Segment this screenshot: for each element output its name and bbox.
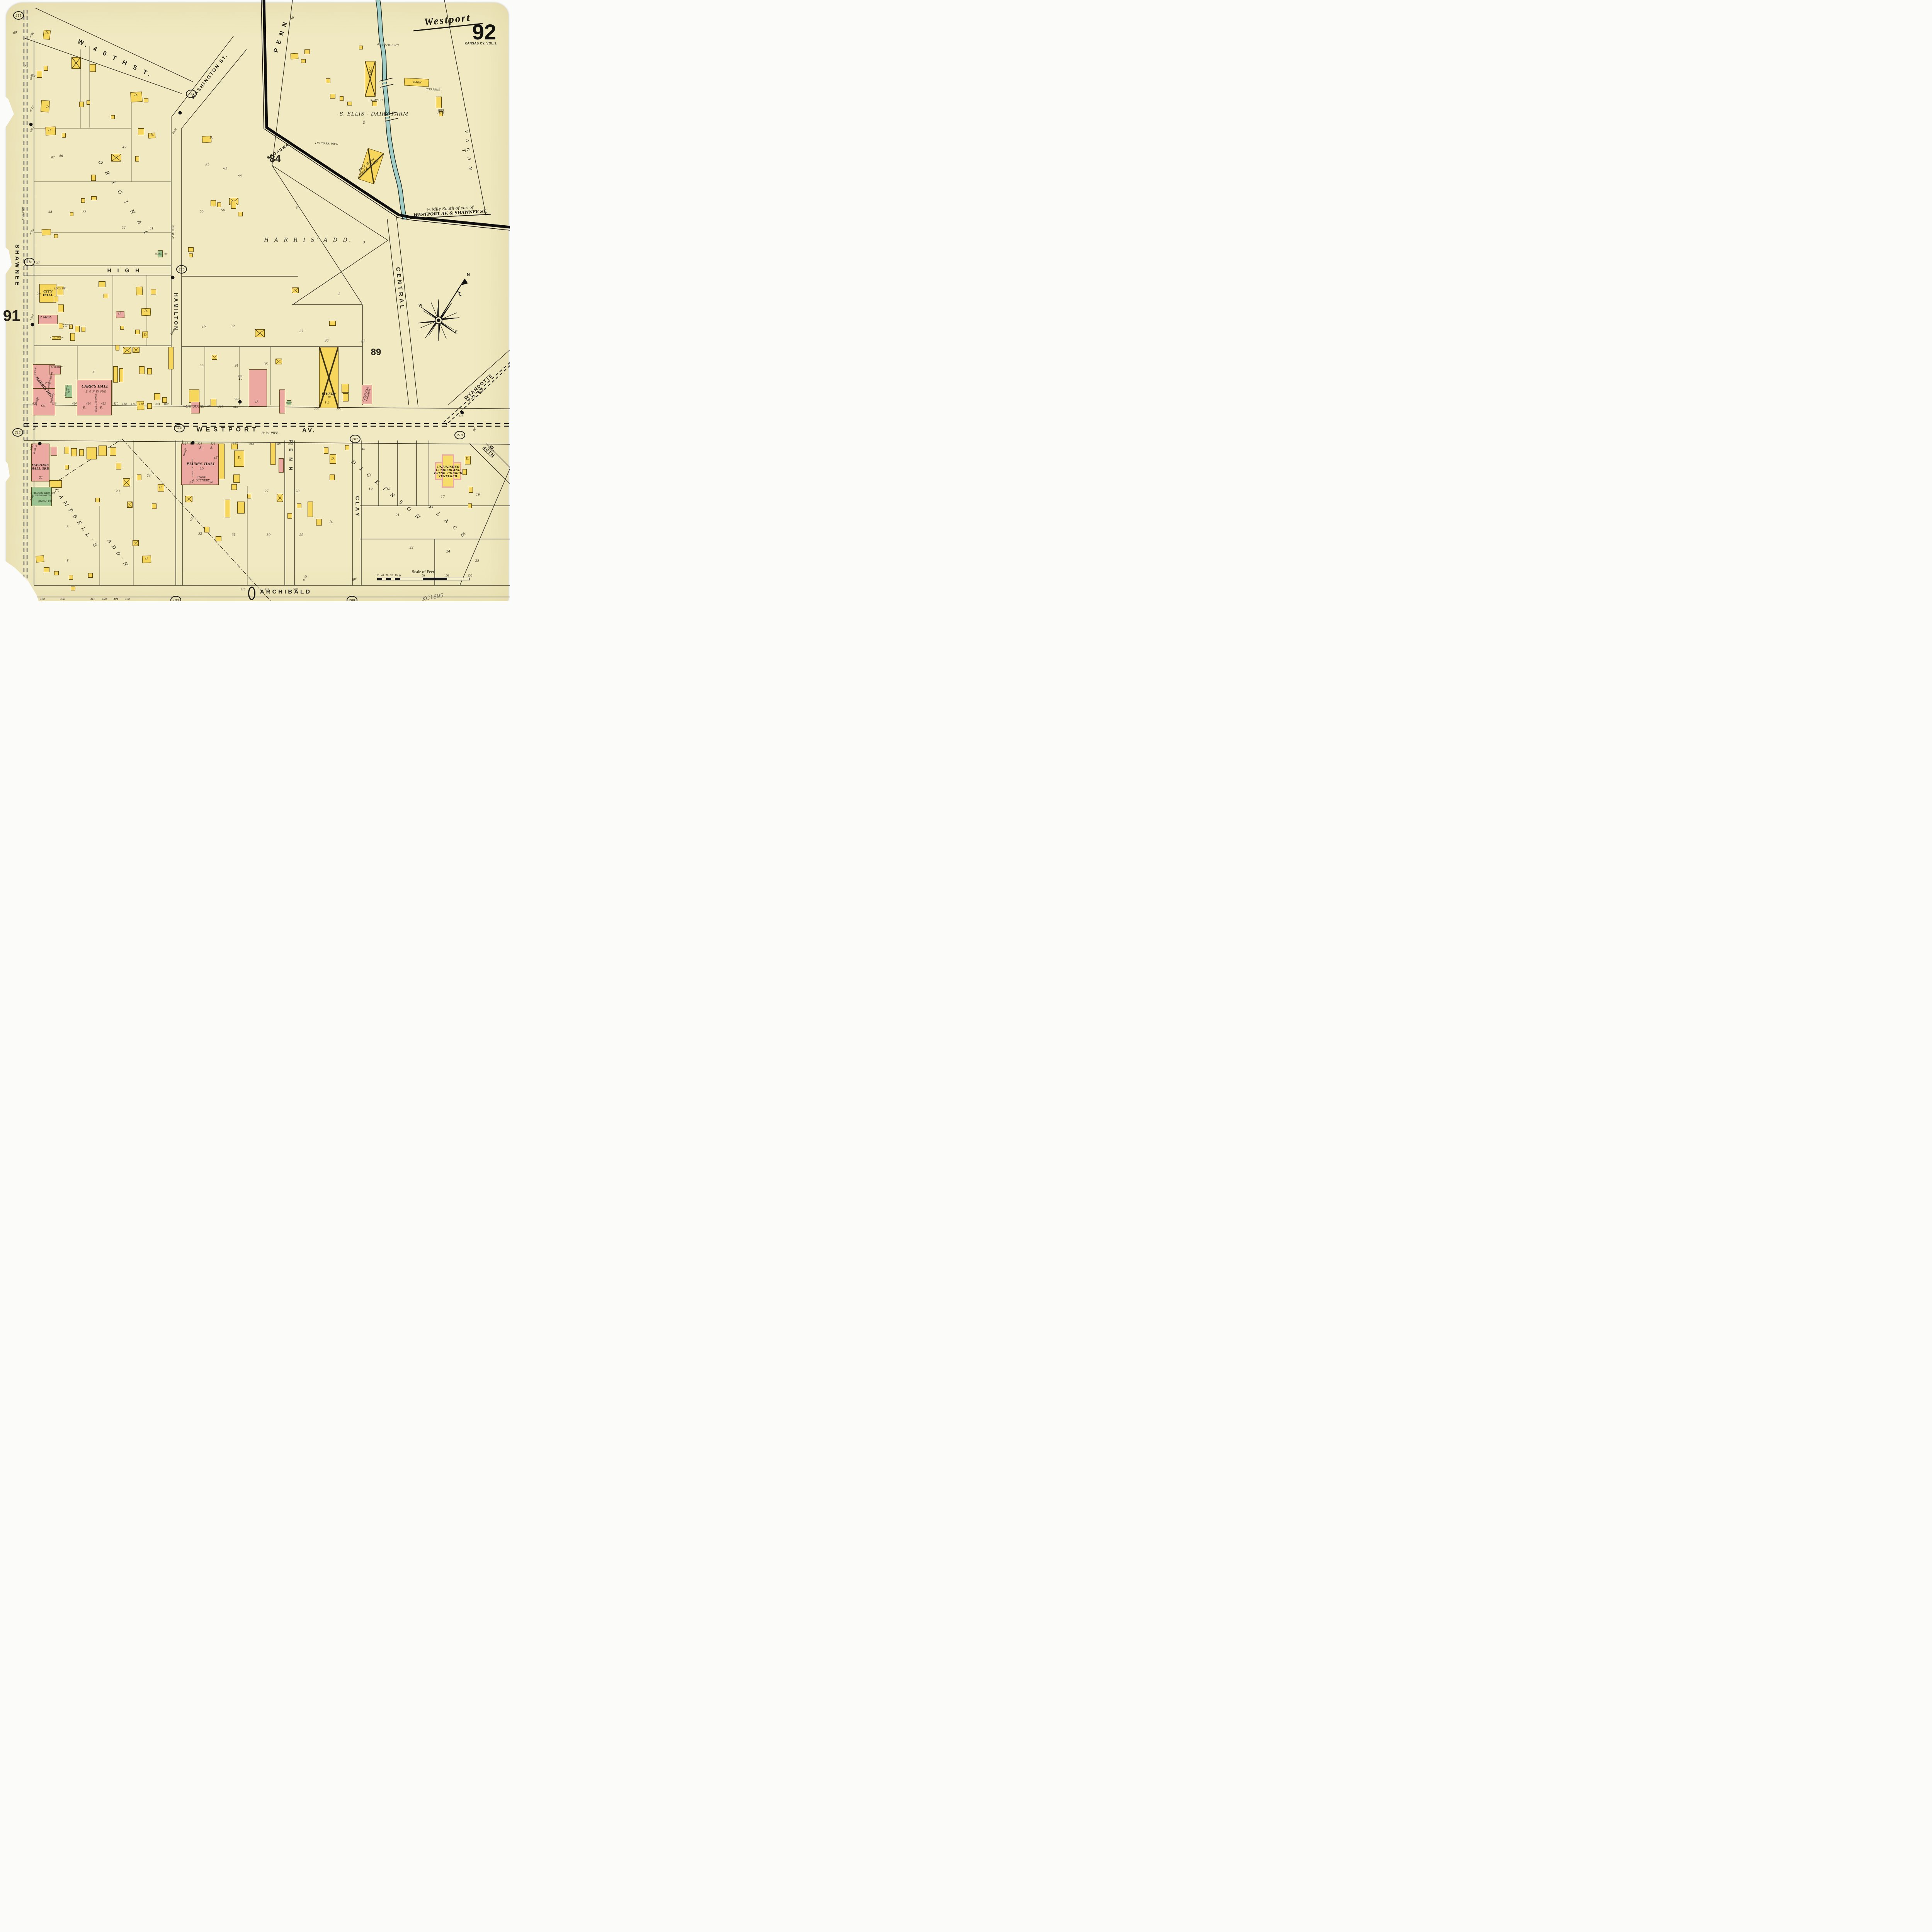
- building-frame: [308, 502, 313, 517]
- building-frame: [297, 503, 301, 508]
- lot-number: D.: [466, 457, 469, 461]
- lot-number: 52: [122, 226, 126, 230]
- lot-number: 53: [82, 210, 86, 214]
- label-livery-height: 1½: [325, 402, 330, 405]
- building-frame: [347, 102, 352, 105]
- building-frame: [162, 397, 167, 403]
- building-frame: [81, 198, 85, 203]
- note-115ft: 115' TO PR. DW'G: [315, 142, 338, 146]
- address-number: 4033: [29, 228, 35, 235]
- building-frame: [468, 503, 472, 508]
- building-frame: [330, 474, 335, 480]
- sheet-bottom-margin: [0, 601, 510, 607]
- address-number: 300: [337, 407, 341, 410]
- lot-number: 23: [116, 490, 120, 493]
- building-frame: [189, 389, 199, 403]
- lot-number: D.: [332, 457, 335, 461]
- lot-number: 31: [232, 534, 236, 537]
- lot-number: 28: [296, 490, 299, 493]
- dim-42: 42': [361, 447, 366, 451]
- street-westport: WESTPORT: [197, 426, 260, 433]
- circled-reference-number: 210: [454, 431, 465, 439]
- building-frame: [324, 447, 328, 454]
- lot-number: 62: [206, 164, 209, 167]
- note-cows: COWS: [368, 66, 371, 75]
- address-number: 303: [288, 443, 293, 446]
- lot-number: 4: [296, 206, 298, 210]
- address-number: 4021: [29, 126, 35, 133]
- circled-reference-number: 233: [186, 90, 197, 98]
- lot-number: 32: [198, 532, 202, 536]
- lot-number: 21: [396, 514, 400, 517]
- building-frame: [133, 540, 139, 546]
- building-frame: [79, 102, 84, 107]
- utility-dot: [238, 400, 242, 404]
- building-frame: [144, 98, 148, 102]
- building-frame: [330, 94, 335, 99]
- street-clay: CLAY: [354, 496, 360, 518]
- label-saloon: Sal.: [41, 405, 46, 408]
- address-number: 428: [52, 402, 56, 405]
- label-tenement: T.: [238, 375, 243, 381]
- lot-number: D.: [255, 400, 259, 404]
- adjacent-sheet-number: 91: [3, 308, 20, 324]
- building-frame: [151, 289, 156, 294]
- building-frame: [123, 478, 130, 486]
- address-number: 322: [207, 405, 211, 408]
- building-frame: [342, 384, 349, 393]
- address-number: 414: [131, 403, 136, 405]
- building-frame: [62, 133, 66, 138]
- circled-reference-number: 218: [24, 258, 35, 266]
- building-frame: [137, 474, 141, 480]
- note-hog-pens-2: HOG PENS: [437, 110, 444, 115]
- street-shawnee: SHAWNEE: [14, 245, 20, 287]
- building-frame: [216, 536, 221, 541]
- circled-reference-number: 211: [13, 11, 24, 20]
- address-number: 305: [277, 443, 281, 446]
- street-w40th-north: W. 4 0 T H S T.: [77, 38, 154, 79]
- building-frame: [79, 449, 84, 456]
- street-w40th-south: W. 40TH: [480, 440, 501, 460]
- compass-letter: E: [455, 331, 458, 335]
- address-number: 424: [86, 402, 91, 405]
- lot-number: D.: [118, 312, 122, 316]
- building-frame: [119, 368, 123, 382]
- building-frame: [87, 100, 90, 105]
- lot-number: 54: [48, 211, 52, 214]
- lot-number: 30: [267, 534, 270, 537]
- building-frame: [436, 97, 442, 108]
- scale-bar-segment: [377, 578, 382, 580]
- building-frame: [204, 527, 209, 532]
- adjacent-sheet-number: 89: [371, 347, 381, 357]
- building-frame: [75, 326, 80, 332]
- building-frame: [189, 253, 193, 257]
- label-plums-hall: PLUM'S HALL: [187, 463, 216, 466]
- lot-number: 51: [150, 227, 153, 231]
- lot-number: 35: [264, 363, 268, 366]
- label-shop-green: SHOP: [286, 402, 292, 404]
- address-number: 412: [90, 598, 95, 600]
- building-frame: [469, 487, 473, 493]
- scale-bar-tick: 100: [444, 574, 449, 577]
- address-number: 328: [191, 405, 196, 408]
- building-frame: [359, 46, 363, 49]
- building-frame: [135, 330, 140, 334]
- scale-bar-segment: [423, 578, 446, 580]
- building-frame: [238, 212, 243, 216]
- address-number: 410: [139, 403, 144, 405]
- dim-33: 33': [36, 261, 41, 265]
- building-frame: [116, 463, 121, 469]
- lot-number: D.: [145, 310, 148, 313]
- address-number: 312: [265, 588, 269, 591]
- label-rendering-kettle: RENDER'G KETTLE: [62, 324, 73, 328]
- lot-number: 17: [441, 496, 445, 499]
- lot-number: 22: [410, 546, 413, 550]
- lot-number: 34: [235, 364, 238, 368]
- building-frame: [90, 64, 96, 72]
- building-frame: [71, 587, 75, 590]
- building-frame: [326, 78, 330, 83]
- lot-number: D.: [159, 486, 163, 490]
- building-frame: [231, 484, 237, 490]
- building-frame: [147, 368, 152, 374]
- lot-number: 49: [122, 146, 126, 150]
- lot-number: S.: [100, 406, 103, 410]
- circled-reference-number: 220: [176, 265, 187, 274]
- scale-bar-tick: 20: [390, 574, 393, 577]
- building-frame: [65, 447, 69, 454]
- building-frame: [212, 355, 217, 360]
- label-plums-hall-1st: HALL 1ST ONLY: [192, 459, 194, 477]
- building-frame: [116, 345, 119, 350]
- building-frame: [95, 498, 100, 502]
- lot-number: D.: [210, 136, 213, 140]
- building-frame: [154, 393, 160, 400]
- address-number: 4040: [170, 329, 175, 336]
- scale-bar-tick: 50: [377, 574, 379, 577]
- building-frame: [185, 496, 192, 502]
- building-frame: [219, 444, 224, 479]
- dim-60-westport-r: 60': [473, 427, 477, 432]
- building-frame: [44, 66, 48, 71]
- label-oven: OVEN: [44, 383, 51, 385]
- address-number: 308: [293, 588, 298, 591]
- lot-number: 2: [92, 370, 94, 374]
- lot-number: D.: [46, 32, 49, 35]
- building-frame: [188, 247, 194, 252]
- street-penn: P E N N: [273, 20, 289, 54]
- building-frame: [37, 71, 42, 78]
- address-number: 350: [183, 405, 187, 408]
- scale-bar-segment: [447, 578, 470, 580]
- building-frame: [54, 571, 59, 575]
- dim-50-bottom: 50': [352, 577, 357, 582]
- address-number: 4113: [189, 515, 195, 522]
- building-frame: [301, 59, 306, 63]
- building-frame: [291, 53, 299, 59]
- building-frame: [168, 347, 173, 369]
- address-number: 408: [102, 598, 107, 600]
- lot-number: D.: [145, 557, 149, 561]
- district-campbells: C A M P B E L L ' S: [53, 488, 98, 549]
- label-office: OFFICE: [34, 367, 37, 377]
- utility-dot: [31, 323, 34, 327]
- lot-number: 36: [325, 339, 328, 343]
- address-number: 4017: [29, 105, 35, 112]
- address-number: 4047: [29, 314, 35, 321]
- building-frame: [54, 234, 58, 238]
- building-frame: [304, 49, 310, 54]
- building-frame: [340, 96, 344, 101]
- note-8in-pipe: 8" W. PIPE.: [262, 432, 279, 435]
- lot-number: 2: [338, 293, 340, 296]
- lot-number: 21: [39, 476, 43, 480]
- scale-bar-tick: 30: [386, 574, 388, 577]
- lot-number: S.: [199, 447, 202, 450]
- lot-number: 55: [200, 210, 204, 214]
- lot-number: 8: [66, 560, 68, 563]
- building-frame: [69, 575, 73, 580]
- note-pump-ho: PUMP HO.: [369, 99, 383, 102]
- label-carrs-floors: 2° & 3° IN ONE: [86, 390, 106, 393]
- note-67ft: 67': [363, 120, 367, 125]
- label-carrs-hall: CARR'S HALL: [82, 385, 109, 389]
- lot-number: 24: [147, 474, 151, 478]
- lot-number: 18: [386, 488, 390, 492]
- scale-bar-tick: 50: [422, 574, 425, 577]
- scale-bar-tick: 150: [468, 574, 472, 577]
- address-number: 4002: [29, 31, 35, 38]
- building-frame: [71, 57, 81, 69]
- building-frame: [237, 502, 245, 514]
- building-frame: [113, 366, 118, 383]
- building-frame: [111, 115, 115, 119]
- building-frame: [231, 201, 236, 209]
- building-frame: [88, 573, 93, 578]
- note-th: T.H.: [459, 415, 463, 418]
- label-carrs-hall-1st: HALL 1ST ONLY: [95, 394, 98, 412]
- building-frame: [133, 347, 139, 353]
- address-number: 327: [183, 442, 188, 445]
- building-frame: [58, 304, 64, 312]
- building-frame: [292, 287, 299, 293]
- lot-number: 47: [51, 156, 55, 160]
- street-hamilton: HAMILTON: [173, 293, 179, 331]
- address-number: 400: [164, 403, 168, 405]
- lot-number: 33: [200, 365, 204, 368]
- note-hog-pens-1: HOG PENS: [425, 88, 440, 92]
- lot-number: D.: [48, 129, 52, 133]
- dim-40: 40': [361, 339, 366, 344]
- district-campbells-addn: A D D ' N: [107, 539, 129, 568]
- dim-50-penn: 50': [290, 16, 296, 20]
- building-frame: [211, 200, 216, 206]
- label-city-hall: CITY HALL: [43, 290, 53, 297]
- building-frame: [70, 212, 73, 216]
- building-frame: [99, 281, 105, 287]
- address-number: 404: [114, 598, 118, 600]
- address-number: 418: [122, 403, 127, 405]
- building-frame: [138, 128, 144, 135]
- address-number: 310: [233, 406, 238, 408]
- scale-bar-segment: [382, 578, 386, 580]
- label-masonic-hall: MASONIC HALL 3RD: [31, 463, 49, 470]
- dim-60-topleft: 60': [13, 31, 18, 35]
- note-barn: BARN: [413, 81, 422, 85]
- address-number: 426: [60, 598, 65, 600]
- address-number: 313: [249, 443, 254, 446]
- district-vacant: V A C A N T: [459, 129, 473, 174]
- building-frame: [255, 329, 265, 337]
- building-frame: [127, 502, 133, 508]
- building-frame: [247, 494, 251, 498]
- address-number: 432: [32, 402, 37, 405]
- lot-number: 39: [231, 325, 235, 328]
- address-number: 321: [211, 442, 215, 445]
- lot-number: S.: [83, 406, 86, 410]
- sheet-number: 92: [467, 19, 502, 44]
- building-frame: [329, 321, 336, 326]
- address-number: 323: [197, 442, 202, 445]
- building-frame: [343, 393, 349, 401]
- label-stage: STAGE & SCENERY.: [192, 476, 210, 482]
- building-frame: [44, 567, 49, 572]
- scale-bar-tick: 10: [395, 574, 398, 577]
- building-frame: [233, 474, 240, 483]
- street-westport-av: AV.: [302, 427, 316, 434]
- address-number: 4038: [172, 128, 177, 135]
- dim-60-westport-l: 60': [32, 425, 37, 430]
- building-frame: [87, 447, 97, 459]
- utility-dot: [179, 111, 182, 115]
- street-central: CENTRAL: [395, 267, 405, 311]
- scale-bar: Scale of Feet. 5040302010050100150: [373, 570, 474, 585]
- scale-bar-tick: 0: [399, 574, 401, 577]
- lot-number: 27: [265, 490, 269, 493]
- building-frame: [277, 494, 283, 502]
- building-brick: [279, 389, 285, 413]
- note-6in-pipe-2: 6" W. PIPE: [22, 207, 24, 220]
- address-number: 517: [22, 64, 28, 69]
- lot-number: 60: [238, 174, 242, 178]
- adjacent-sheet-number: 84: [270, 153, 281, 164]
- address-number: 426: [72, 402, 77, 405]
- address-number: 400: [125, 598, 130, 600]
- building-frame: [270, 443, 276, 465]
- building-frame: [211, 399, 216, 406]
- utility-dot: [171, 276, 175, 279]
- building-frame: [65, 465, 69, 469]
- compass-letter: N: [467, 273, 470, 277]
- address-number: 4022: [303, 575, 308, 582]
- circled-reference-number: 200: [174, 424, 185, 432]
- map-screenshot: W. 4 0 T H S T.WASHINGTON ST.P E N NBROA…: [0, 0, 510, 607]
- building-frame: [135, 156, 139, 162]
- lot-number: D.: [238, 456, 241, 460]
- building-frame: [120, 326, 124, 330]
- building-frame: [54, 296, 58, 302]
- building-frame: [136, 287, 143, 296]
- lot-number: 25: [189, 481, 193, 485]
- note-68ft: 68' TO PR. DW'G: [377, 43, 399, 47]
- circled-reference-number: 212: [12, 428, 23, 437]
- building-frame: [316, 519, 322, 526]
- building-frame: [217, 202, 221, 207]
- building-brick: [51, 447, 57, 456]
- street-high: H I G H: [107, 267, 142, 273]
- lot-number: 40: [202, 326, 206, 329]
- address-number: 430: [40, 598, 45, 600]
- building-frame: [36, 555, 44, 562]
- label-blksm-1: BLKSM. 1ST: [38, 501, 52, 503]
- lot-number: 5: [66, 526, 68, 529]
- utility-dot: [191, 441, 195, 445]
- utility-dot: [29, 123, 33, 126]
- building-frame: [319, 347, 338, 408]
- lot-number: D.: [151, 134, 154, 137]
- utility-dot: [461, 411, 464, 415]
- note-6in-pipe-1: 6" W. PIPE: [172, 225, 175, 239]
- label-kitchen: KITCHEN: [51, 366, 63, 369]
- address-number: 404: [155, 403, 160, 405]
- building-frame: [372, 101, 377, 106]
- scale-bar-tick: 40: [381, 574, 384, 577]
- building-frame: [42, 229, 51, 236]
- district-harris-add: H A R R I S' A D D.: [264, 237, 352, 243]
- utility-dot: [38, 442, 42, 446]
- lot-number: 19: [369, 488, 372, 492]
- label-meat: 2 Meat.: [40, 316, 52, 320]
- building-frame: [104, 294, 108, 298]
- district-dairy-farm: S. ELLIS - DAIRY FARM: [340, 112, 409, 117]
- scale-bar-segment: [391, 578, 395, 580]
- lot-number: 26: [209, 481, 213, 485]
- building-frame: [123, 347, 131, 354]
- address-number: 420: [114, 402, 118, 405]
- sheet-volume: KANSAS CY. VOL.1.: [460, 42, 502, 45]
- label-plums-2d: 2D: [200, 468, 204, 471]
- lot-number: D.: [46, 106, 50, 109]
- address-number: 422: [101, 402, 106, 405]
- building-frame: [287, 513, 292, 519]
- building-frame: [463, 469, 467, 475]
- label-lock-up: LOCK UP: [54, 288, 66, 290]
- label-blksm-2: BLKSM. 1ST: [155, 253, 167, 255]
- scale-bar-segment: [395, 578, 400, 580]
- building-frame: [82, 327, 85, 332]
- building-frame: [147, 403, 152, 409]
- building-frame: [71, 448, 77, 456]
- label-coal-shed: COAL SHED: [50, 337, 63, 339]
- lot-number: D.: [144, 333, 148, 337]
- label-cumberland: UNFINISHED CUMBERLAND PRESB. CHURCH VENE…: [434, 466, 462, 478]
- address-number: 318: [218, 405, 223, 408]
- building-frame: [99, 446, 107, 456]
- building-brick: [279, 458, 284, 473]
- lot-number: 48: [59, 155, 63, 158]
- building-frame: [110, 447, 116, 456]
- lot-number: 56: [221, 209, 225, 213]
- map-content-layer: W. 4 0 T H S T.WASHINGTON ST.P E N NBROA…: [0, 0, 510, 607]
- building-frame: [70, 333, 75, 341]
- lot-number: 37: [299, 330, 303, 333]
- lot-number: D.: [330, 521, 333, 524]
- lot-number: 3: [363, 241, 365, 245]
- building-frame: [152, 503, 156, 509]
